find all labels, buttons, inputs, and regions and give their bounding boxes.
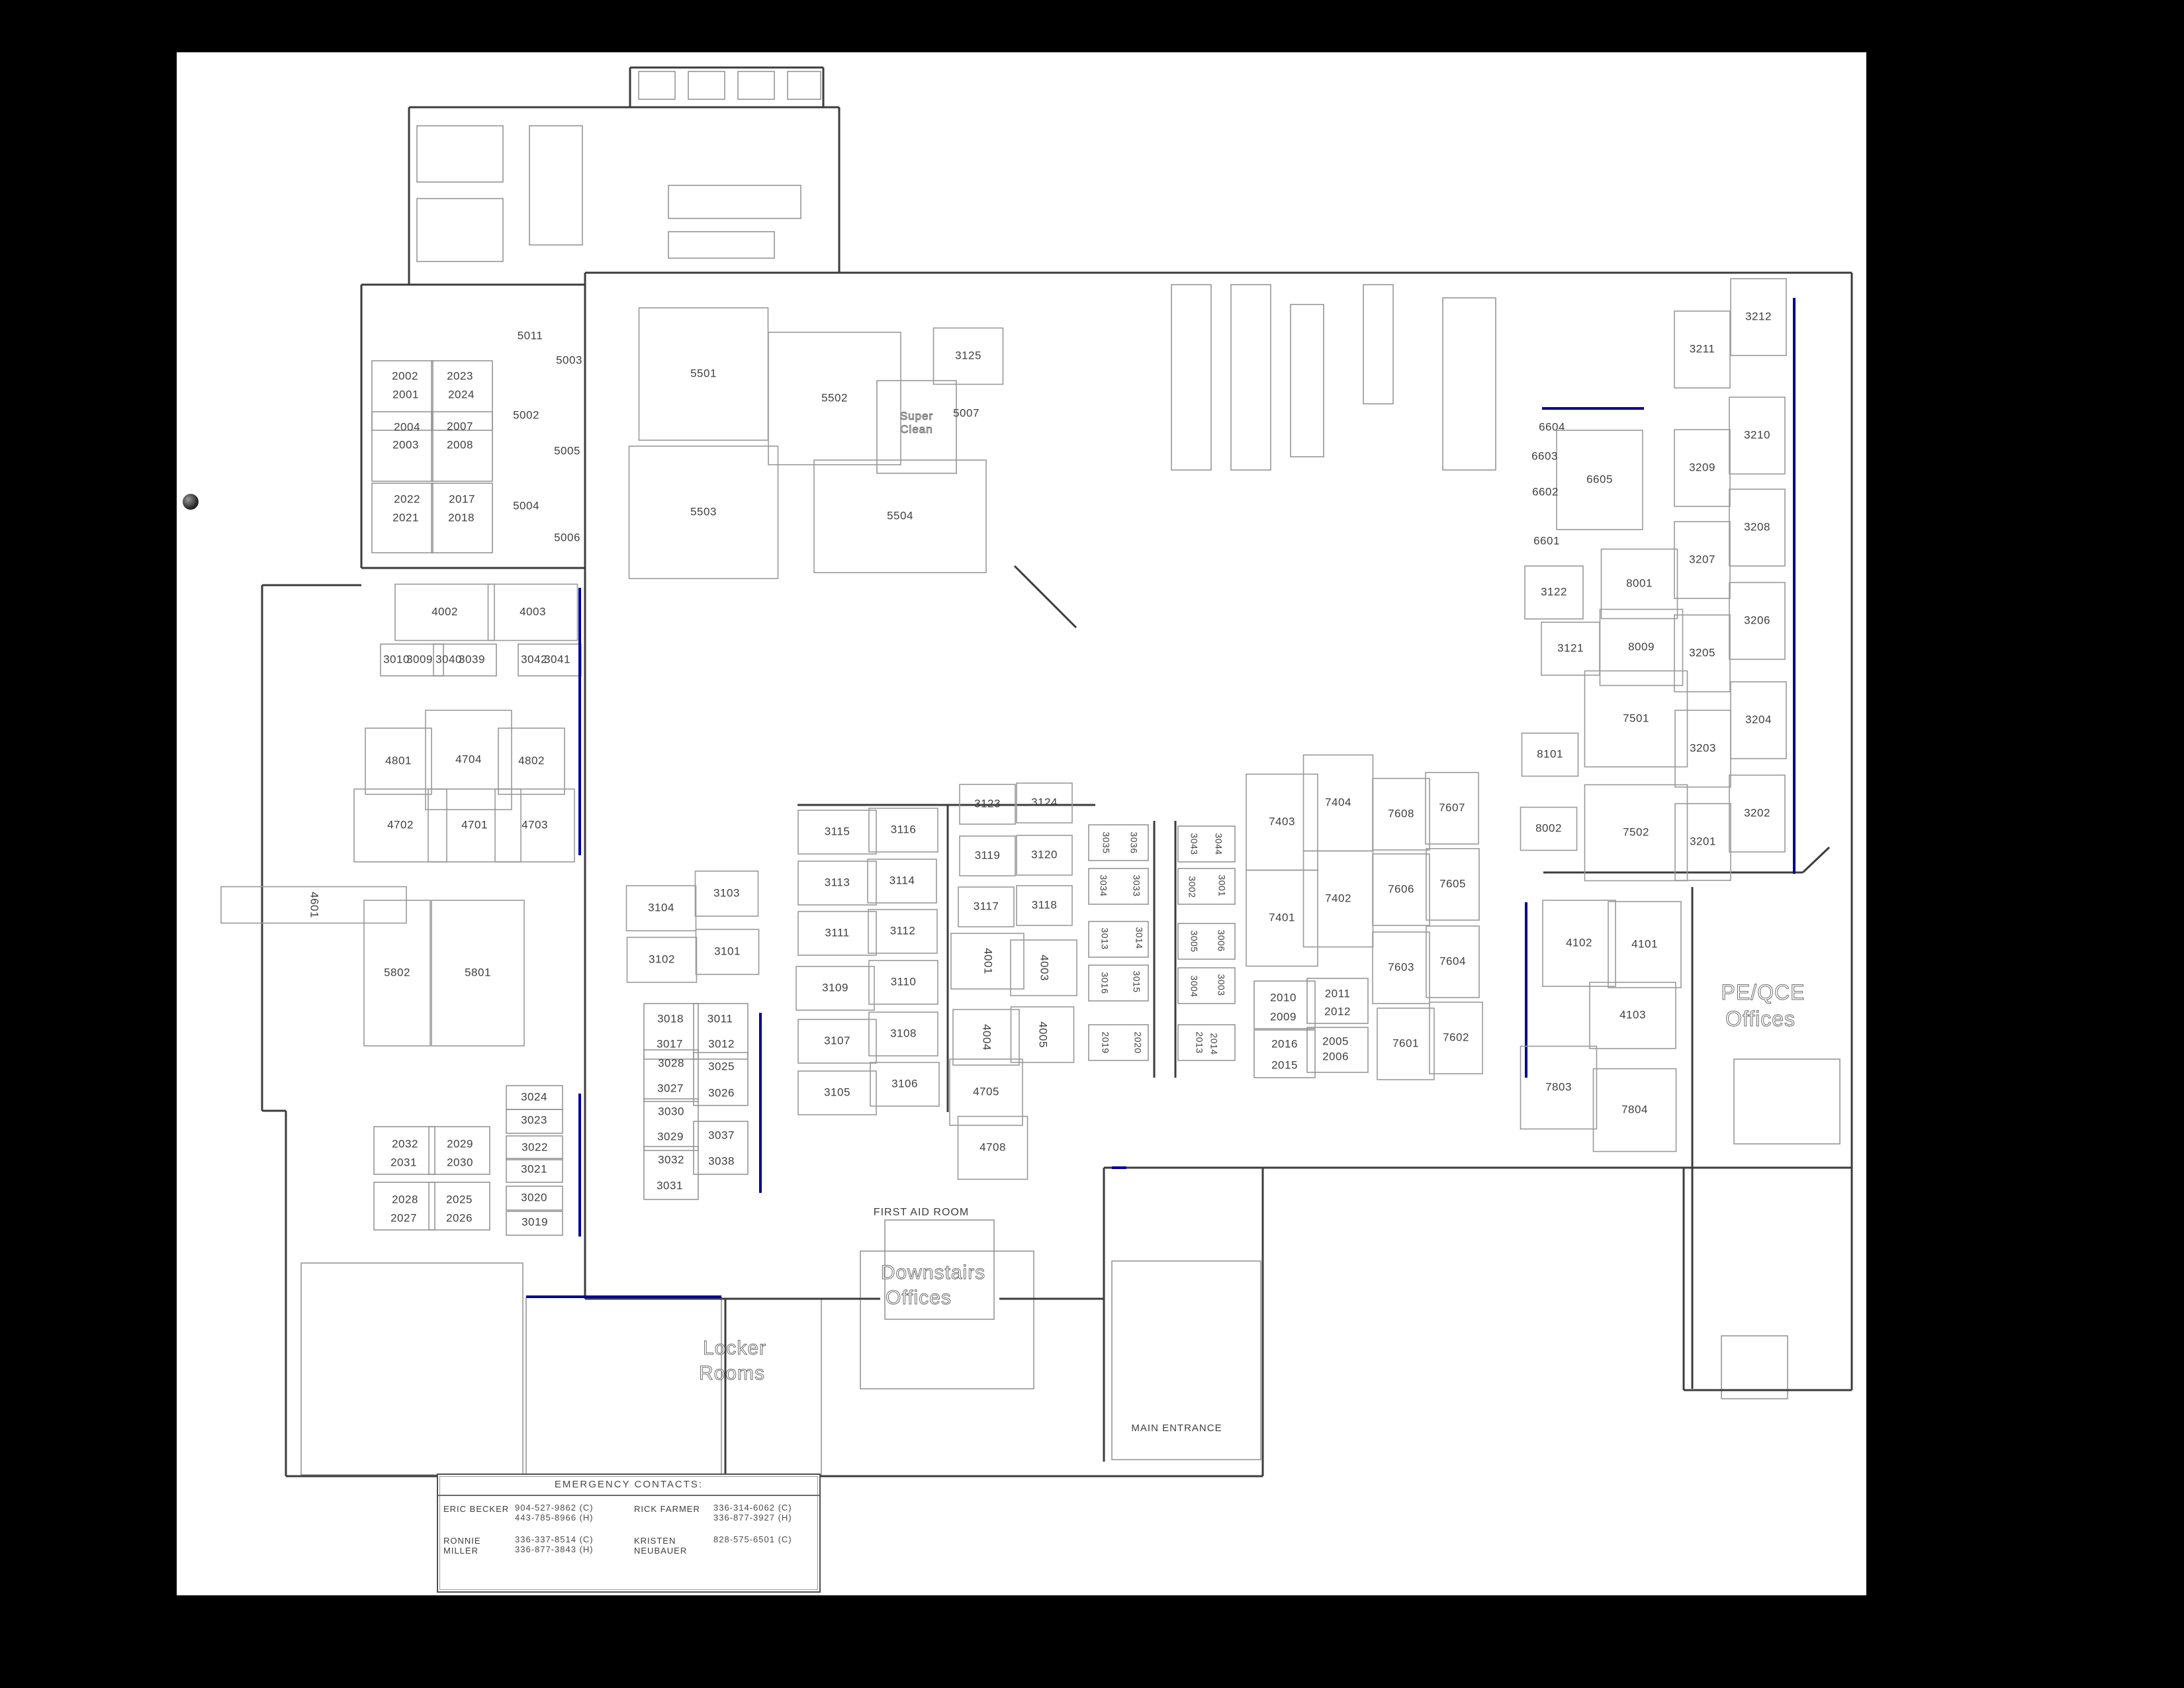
room-label: 3027 [657, 1082, 684, 1094]
room-label: 3206 [1744, 614, 1770, 626]
room-label: 2007 [447, 420, 473, 432]
plan-box [1231, 285, 1271, 470]
room-label: 7501 [1623, 712, 1649, 724]
room-label: 4101 [1631, 937, 1658, 950]
room-label: 5501 [690, 367, 717, 379]
room-label: 7608 [1388, 807, 1414, 820]
area-label: Downstairs [881, 1262, 985, 1284]
room-label: 3117 [974, 900, 999, 912]
room-label: 3212 [1745, 310, 1772, 322]
room-label: 5007 [953, 406, 979, 419]
room-label: 3013 [1099, 927, 1110, 949]
room-label: 4703 [522, 818, 548, 831]
wall-line [1015, 566, 1076, 628]
room-label: 3116 [891, 823, 917, 835]
plan-box [668, 185, 801, 218]
room-label: 3044 [1213, 833, 1224, 855]
room-label: 3205 [1689, 646, 1715, 659]
area-label: Locker [703, 1337, 766, 1359]
room-label: 6601 [1533, 534, 1560, 547]
room-label: 3025 [708, 1060, 735, 1072]
wall-line [1803, 847, 1829, 872]
emergency-contacts-grid: ERIC BECKER 904-527-9862 (C) 443-785-896… [438, 1496, 819, 1556]
room-label: 3124 [1031, 796, 1058, 808]
contact-phone: 336-877-3843 (H) [515, 1544, 634, 1554]
room-label: 7803 [1545, 1080, 1572, 1093]
room-label: 3118 [1032, 898, 1058, 911]
room-label: 2028 [392, 1193, 418, 1205]
room-label: 7607 [1439, 801, 1465, 814]
room-label: 4701 [461, 818, 488, 831]
room-label: 2020 [1132, 1031, 1143, 1053]
room-label: 3024 [521, 1090, 547, 1103]
room-label: 8101 [1537, 747, 1563, 760]
room-label: 2011 [1325, 987, 1351, 1000]
room-label: 2009 [1270, 1010, 1297, 1023]
room-label: 3037 [708, 1129, 735, 1141]
room-label: 7502 [1623, 825, 1649, 838]
room-label: 2032 [392, 1137, 418, 1150]
room-label: 3035 [1101, 831, 1111, 853]
room-label: 7606 [1388, 882, 1414, 895]
room-label: 7603 [1388, 961, 1414, 973]
contact-phone: 443-785-8966 (H) [515, 1513, 634, 1523]
room-label: 2030 [447, 1156, 473, 1168]
room-label: 2029 [447, 1137, 473, 1150]
room-label: 5006 [554, 531, 580, 543]
room-label: 2005 [1322, 1035, 1349, 1047]
room-label: 4001 [982, 948, 995, 974]
plan-box [788, 71, 821, 99]
area-label: Offices [886, 1287, 952, 1309]
plan-box [668, 232, 774, 258]
room-label: 3101 [714, 945, 741, 957]
room-label: 2025 [446, 1193, 473, 1205]
room-label: 6602 [1532, 485, 1559, 498]
room-label: 3004 [1189, 975, 1199, 997]
room-label: 3016 [1099, 972, 1110, 994]
room-label: 3103 [713, 886, 740, 899]
contact-name: RONNIE MILLER [443, 1534, 515, 1556]
contact-name: RICK FARMER [634, 1503, 713, 1523]
room-label: 3121 [1557, 641, 1584, 654]
room-label: 3125 [955, 349, 981, 361]
plan-box [417, 126, 503, 182]
room-label: 2021 [392, 511, 419, 524]
room-label: 5801 [465, 966, 491, 978]
room-label: 3026 [708, 1086, 735, 1099]
room-label: 3120 [1031, 848, 1058, 861]
area-label: Rooms [699, 1362, 765, 1384]
room-label: 7604 [1439, 955, 1466, 967]
plan-box [639, 71, 675, 99]
room-label: 4103 [1619, 1008, 1646, 1021]
area-label: PE/QCE [1721, 980, 1805, 1004]
plan-box [1178, 1025, 1235, 1060]
contact-phone: 336-337-8514 (C) [515, 1534, 634, 1544]
contact-phones: 336-314-6062 (C) 336-877-3927 (H) [713, 1503, 819, 1523]
room-label: 3006 [1216, 929, 1226, 951]
room-label: 2006 [1322, 1050, 1349, 1062]
room-label: 3018 [657, 1012, 684, 1025]
room-label: 3112 [890, 924, 916, 937]
room-label: 2010 [1270, 991, 1297, 1004]
plan-box [1363, 285, 1393, 404]
room-label: 6603 [1531, 449, 1558, 462]
room-label: 3211 [1690, 342, 1715, 355]
room-label: 3123 [974, 797, 1001, 810]
room-label: 3209 [1689, 461, 1715, 473]
room-label: 2024 [448, 388, 475, 400]
room-label: 3043 [1189, 833, 1199, 855]
plan-box [1291, 305, 1324, 457]
binder-hole-mark [183, 494, 199, 510]
plan-box [688, 71, 725, 99]
room-label: 7401 [1269, 911, 1295, 923]
room-label: 2012 [1324, 1005, 1351, 1017]
room-label: 2031 [390, 1156, 417, 1168]
room-label: 3022 [522, 1141, 548, 1153]
area-label: Clean [900, 423, 933, 436]
room-label: 3023 [521, 1113, 547, 1126]
room-label: 8002 [1535, 821, 1562, 834]
room-label: 7404 [1325, 796, 1351, 808]
room-label: 6604 [1539, 420, 1565, 433]
room-label: 3002 [1187, 876, 1197, 898]
contact-phone: 904-527-9862 (C) [515, 1503, 634, 1513]
room-label: 2017 [449, 492, 475, 505]
room-label: 2013 [1194, 1031, 1205, 1053]
room-label: 3019 [522, 1215, 548, 1228]
room-label: 3119 [975, 849, 1001, 861]
area-label: Super [900, 410, 933, 422]
room-label: 3030 [658, 1105, 684, 1117]
room-label: 5503 [690, 505, 717, 518]
room-label: 3207 [1689, 553, 1715, 565]
emergency-contacts-table: EMERGENCY CONTACTS: ERIC BECKER 904-527-… [437, 1474, 821, 1593]
room-label: 7402 [1325, 892, 1351, 904]
plan-box [1178, 826, 1235, 862]
room-label: 3208 [1744, 520, 1770, 533]
room-label: 5504 [887, 509, 913, 522]
room-label: 4802 [518, 754, 545, 767]
contact-phones: 336-337-8514 (C) 336-877-3843 (H) [515, 1534, 634, 1556]
room-label: 2016 [1271, 1037, 1298, 1050]
area-label: Offices [1725, 1007, 1796, 1031]
room-label: 2022 [394, 492, 420, 505]
room-label: 3201 [1690, 835, 1716, 847]
room-label: 7601 [1392, 1037, 1419, 1049]
room-label: 2019 [1100, 1031, 1111, 1053]
plan-box [1443, 298, 1496, 470]
room-label: 3003 [1216, 974, 1226, 996]
room-label: 3040 [435, 653, 462, 665]
room-label: 4601 [308, 892, 321, 918]
room-label: 3031 [657, 1179, 683, 1192]
room-label: 3114 [889, 874, 915, 886]
room-label: 5004 [513, 499, 539, 512]
room-label: 2015 [1271, 1058, 1298, 1071]
room-label: 4003 [520, 605, 546, 618]
room-label: 2026 [446, 1211, 473, 1224]
contact-phone: 336-877-3927 (H) [713, 1513, 819, 1523]
room-label: 3210 [1744, 428, 1770, 441]
room-label: 4102 [1566, 936, 1592, 949]
room-label: 4708 [979, 1141, 1006, 1153]
room-label: 3011 [707, 1012, 733, 1025]
room-label: 3010 [383, 653, 410, 665]
room-label: 2008 [447, 438, 473, 451]
room-label: 5005 [554, 444, 580, 457]
contact-name: ERIC BECKER [443, 1503, 515, 1523]
room-label: 5802 [384, 966, 410, 978]
room-label: 4005 [1037, 1021, 1050, 1048]
room-label: 3113 [825, 876, 850, 888]
room-label: 3108 [890, 1027, 917, 1039]
room-label: 7605 [1439, 877, 1466, 890]
room-label: 3009 [406, 653, 433, 665]
room-label: 3104 [648, 901, 674, 914]
room-label: 8009 [1628, 640, 1655, 653]
room-label: 3042 [521, 653, 547, 665]
room-label: 3122 [1541, 585, 1567, 598]
room-label: 3102 [649, 953, 675, 965]
room-label: 3014 [1134, 927, 1144, 949]
room-label: 4002 [432, 605, 458, 618]
room-label: 3005 [1189, 930, 1199, 952]
room-label: 4003 [1038, 955, 1051, 981]
room-label: 2003 [392, 438, 419, 451]
contact-phones: 828-575-6501 (C) [713, 1534, 819, 1556]
room-label: 4704 [455, 753, 482, 765]
room-label: 2004 [394, 420, 420, 433]
room-label: 7602 [1443, 1031, 1469, 1043]
room-label: 3021 [521, 1162, 547, 1175]
room-label: 2001 [392, 388, 419, 400]
room-label: 3017 [657, 1037, 683, 1050]
room-label: 3039 [459, 653, 485, 665]
room-label: 3033 [1131, 874, 1142, 896]
plan-box [301, 1263, 523, 1475]
room-label: 5011 [518, 329, 543, 342]
room-label: 3109 [822, 981, 848, 994]
room-label: 7403 [1269, 815, 1295, 827]
floor-plan-svg: 2002200120042003202220212023202420072008… [0, 0, 2184, 1688]
room-label: 3204 [1745, 713, 1772, 726]
contact-phone: 336-314-6062 (C) [713, 1503, 819, 1513]
plan-box [1734, 1059, 1840, 1144]
room-label: 2018 [448, 511, 475, 524]
room-label: 3110 [891, 975, 917, 988]
plan-box [725, 1299, 821, 1476]
room-label: 3111 [825, 926, 849, 939]
area-label: FIRST AID ROOM [874, 1207, 969, 1218]
room-label: 2023 [447, 369, 473, 382]
plan-box [529, 126, 582, 245]
room-label: 3032 [658, 1153, 684, 1166]
room-label: 4702 [387, 818, 414, 831]
room-label: 5002 [513, 408, 539, 421]
emergency-contacts-header: EMERGENCY CONTACTS: [438, 1475, 819, 1496]
screenshot-canvas: 2002200120042003202220212023202420072008… [0, 0, 2184, 1688]
plan-box [417, 199, 503, 261]
room-label: 3106 [891, 1077, 918, 1090]
plan-box [526, 1297, 721, 1475]
room-label: 3012 [708, 1037, 735, 1050]
room-label: 3001 [1216, 874, 1227, 896]
room-label: 8001 [1626, 577, 1653, 589]
plan-box [1171, 285, 1211, 470]
room-label: 5003 [556, 353, 582, 366]
room-label: 5502 [821, 391, 848, 404]
room-label: 3029 [657, 1130, 684, 1143]
room-label: 6605 [1586, 473, 1613, 485]
contact-phone: 828-575-6501 (C) [713, 1534, 819, 1544]
contact-name: KRISTEN NEUBAUER [634, 1534, 713, 1556]
room-label: 3028 [658, 1056, 684, 1069]
room-label: 3015 [1131, 970, 1142, 992]
room-label: 3203 [1690, 741, 1716, 754]
room-label: 2002 [392, 369, 418, 382]
room-label: 3034 [1098, 874, 1109, 896]
room-label: 3036 [1128, 831, 1139, 853]
room-label: 2014 [1208, 1033, 1219, 1055]
room-label: 4705 [973, 1085, 999, 1098]
room-label: 4004 [981, 1024, 993, 1051]
room-label: 4801 [385, 754, 412, 767]
room-label: 3038 [708, 1154, 735, 1167]
area-label: MAIN ENTRANCE [1131, 1423, 1222, 1434]
contact-phones: 904-527-9862 (C) 443-785-8966 (H) [515, 1503, 634, 1523]
room-label: 3107 [824, 1034, 850, 1047]
room-label: 2027 [390, 1211, 417, 1224]
room-label: 7804 [1621, 1103, 1648, 1115]
room-label: 3115 [825, 825, 850, 837]
room-label: 3041 [544, 653, 570, 665]
room-label: 3105 [824, 1086, 850, 1098]
plan-box [738, 71, 774, 99]
room-label: 3020 [521, 1191, 547, 1203]
room-label: 3202 [1744, 806, 1770, 819]
